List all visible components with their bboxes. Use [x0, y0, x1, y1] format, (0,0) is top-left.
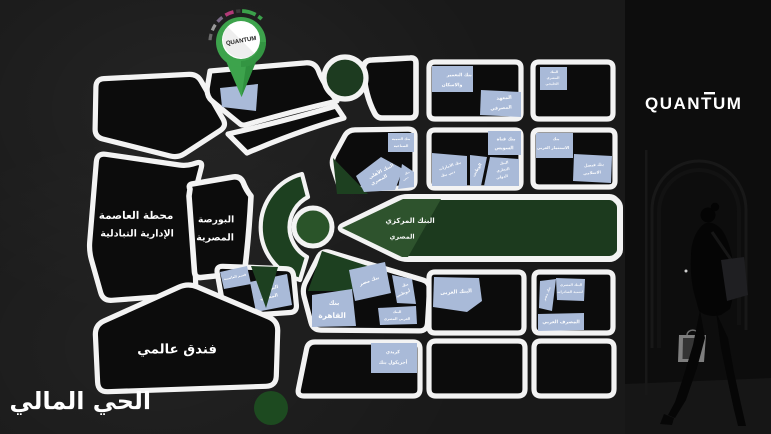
- svg-text:QUANTUM: QUANTUM: [645, 94, 742, 113]
